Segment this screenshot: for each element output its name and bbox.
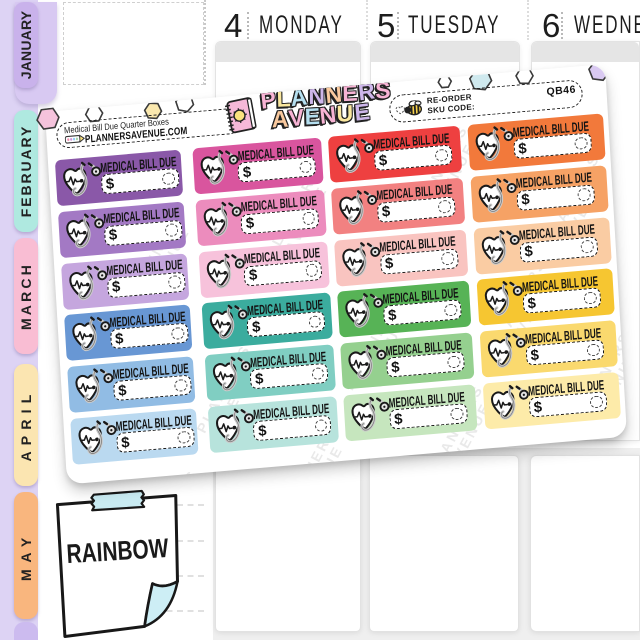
svg-text:RAINBOW: RAINBOW — [66, 533, 170, 569]
